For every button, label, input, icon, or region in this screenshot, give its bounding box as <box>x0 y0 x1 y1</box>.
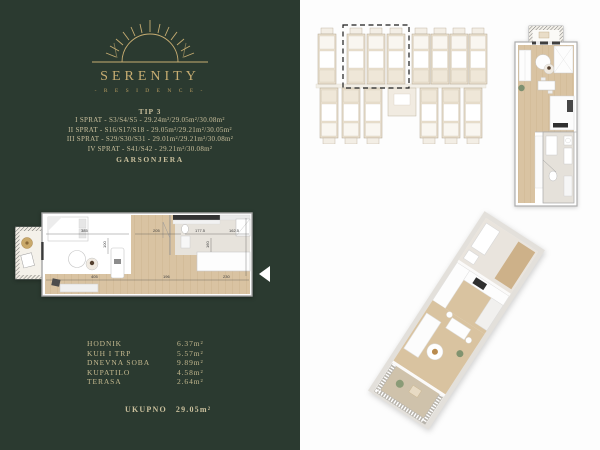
room-areas-table: HODNIK 6.37m² KUH I TRP 5.57m² DNEVNA SO… <box>87 339 204 387</box>
brand-logo: SERENITY - R E S I D E N C E - <box>0 18 300 94</box>
plan2d-unit <box>41 213 252 296</box>
room-area: 2.64m² <box>177 377 204 387</box>
brochure-page: SERENITY - R E S I D E N C E - TIP 3 I S… <box>0 0 600 450</box>
room-row-kupatilo: KUPATILO 4.58m² <box>87 368 204 378</box>
svg-text:196: 196 <box>163 274 170 279</box>
room-name: DNEVNA SOBA <box>87 358 177 368</box>
unit-floor-plan-vertical <box>512 24 582 212</box>
room-row-terasa: TERASA 2.64m² <box>87 377 204 387</box>
prev-arrow-icon[interactable] <box>259 266 270 282</box>
brand-name: SERENITY <box>0 69 300 85</box>
vplan-unit <box>515 42 577 207</box>
total-value: 29.05m² <box>176 405 211 414</box>
svg-text:405: 405 <box>91 274 98 279</box>
room-area: 5.57m² <box>177 349 204 359</box>
svg-text:160: 160 <box>205 241 210 248</box>
sunburst-icon <box>84 18 216 68</box>
svg-text:385: 385 <box>81 228 88 233</box>
floor-line-2: II SPRAT - S16/S17/S18 - 29.05m²/29.21m²… <box>0 126 300 135</box>
total-label: UKUPNO <box>125 405 167 414</box>
plan2d-terrace <box>16 227 43 279</box>
room-row-kuhitrp: KUH I TRP 5.57m² <box>87 349 204 359</box>
room-area: 6.37m² <box>177 339 204 349</box>
unit-info-block: TIP 3 I SPRAT - S3/S4/S5 - 29.24m²/29.05… <box>0 107 300 164</box>
room-name: KUPATILO <box>87 368 177 378</box>
svg-text:100: 100 <box>102 241 107 248</box>
room-row-dnevnasoba: DNEVNA SOBA 9.89m² <box>87 358 204 368</box>
floor-line-3: III SPRAT - S29/S30/S31 - 29.01m²/29.21m… <box>0 135 300 144</box>
floor-line-1: I SPRAT - S3/S4/S5 - 29.24m²/29.05m²/30.… <box>0 116 300 125</box>
floor-line-4: IV SPRAT - S41/S42 - 29.21m²/30.08m² <box>0 145 300 154</box>
info-panel: SERENITY - R E S I D E N C E - TIP 3 I S… <box>0 0 300 450</box>
building-floor-plan <box>308 12 494 144</box>
brand-subtitle: - R E S I D E N C E - <box>0 88 300 94</box>
svg-text:177.5: 177.5 <box>195 228 206 233</box>
room-area: 9.89m² <box>177 358 204 368</box>
room-name: KUH I TRP <box>87 349 177 359</box>
total-area-row: UKUPNO 29.05m² <box>125 405 211 414</box>
building-core <box>388 88 416 116</box>
svg-text:205: 205 <box>153 228 160 233</box>
unit-category: GARSONJERA <box>0 155 300 164</box>
room-name: TERASA <box>87 377 177 387</box>
floorplan-2d: 385 205 177.5 162.5 100 160 405 196 230 <box>15 212 253 297</box>
room-name: HODNIK <box>87 339 177 349</box>
unit-type-label: TIP 3 <box>0 107 300 116</box>
room-area: 4.58m² <box>177 368 204 378</box>
svg-text:230: 230 <box>223 274 230 279</box>
unit-3d-render <box>358 206 598 448</box>
svg-text:162.5: 162.5 <box>229 228 240 233</box>
room-row-hodnik: HODNIK 6.37m² <box>87 339 204 349</box>
vplan-terrace <box>529 26 563 42</box>
